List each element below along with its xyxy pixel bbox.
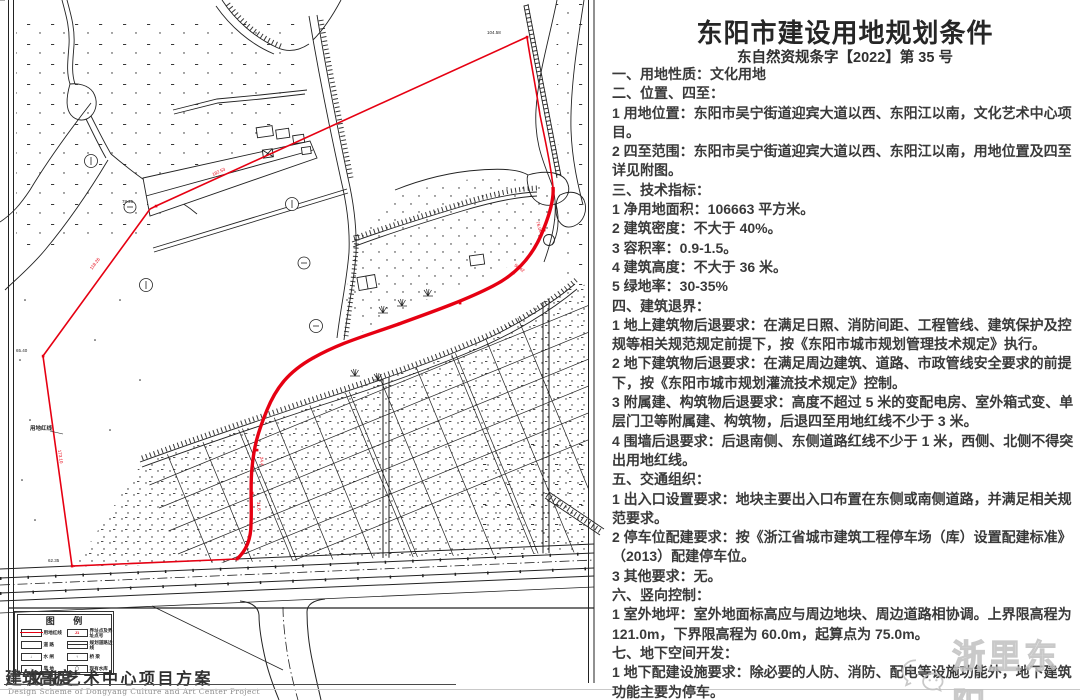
red-line-callout: 用地红线 (29, 424, 53, 432)
paragraph: 2 停车位配建要求：按《浙江省城市建筑工程停车场（库）设置配建标准》（2013）… (612, 528, 1078, 567)
legend-item-boundary-point: J1 界址点及界址点号 (67, 628, 113, 638)
legend-item-road: 道 路 (21, 641, 67, 649)
point-label: 104.58 (487, 30, 501, 35)
paragraph: 1 出入口设置要求：地块主要出入口布置在东侧或南侧道路，并满足相关规范要求。 (612, 490, 1078, 529)
legend-item-redline: 用地红线 (21, 629, 67, 637)
red-line-symbol (21, 629, 42, 637)
planned-road-symbol (67, 641, 88, 649)
paragraph: 五、交通组织： (612, 470, 1078, 489)
paragraph: 六、竖向控制： (612, 586, 1078, 605)
dim-label: 118.26 (89, 256, 101, 270)
paragraph: 一、用地性质：文化用地 (612, 65, 1078, 84)
paragraph: 3 容积率：0.9-1.5。 (612, 239, 1078, 258)
document-number: 东自然资规条字【2022】第 35 号 (610, 46, 1080, 67)
paragraph: 二、位置、四至： (612, 84, 1078, 103)
paragraph: 3 其他要求：无。 (612, 567, 1078, 586)
wechat-icon (900, 655, 946, 700)
terrain-stipple (16, 0, 588, 567)
caption-rule (4, 684, 456, 685)
legend-title: 图 例 (21, 616, 108, 627)
dim-label: 24.4 (259, 457, 265, 467)
paragraph: 2 四至范围：东阳市吴宁街道迎宾大道以西、东阳江以南，用地位置及四至详见附图。 (612, 142, 1078, 181)
paragraph: 1 地上建筑物后退要求：在满足日照、消防间距、工程管线、建筑保护及控规等相关规范… (612, 316, 1078, 355)
paragraph: 5 绿地率：30-35% (612, 277, 1078, 296)
point-label: 78.25 (122, 199, 134, 204)
road-symbol (21, 641, 42, 649)
paragraph: 2 建筑密度：不大于 40%。 (612, 219, 1078, 238)
paragraph: 1 净用地面积：106663 平方米。 (612, 200, 1078, 219)
document-title: 东阳市建设用地规划条件 (610, 13, 1080, 50)
watermark-text: 浙里东阳 (952, 630, 1080, 700)
sluice-symbol: ↓ (21, 653, 42, 661)
map-caption-overlay: 建筑高度 (5, 664, 73, 689)
legend-item-sluice: ↓ 水 闸 (21, 653, 67, 661)
site-map: 182.53 118.26 173.10 76.06 58.42 24.4 31… (0, 0, 610, 700)
paragraph: 4 建筑高度：不大于 36 米。 (612, 258, 1078, 277)
paragraph: 3 附属建、构筑物后退要求：高度不超过 5 米的变配电房、室外箱式变、单层门卫等… (612, 393, 1078, 432)
paragraph: 1 用地位置：东阳市吴宁街道迎宾大道以西、东阳江以南，文化艺术中心项目。 (612, 104, 1078, 143)
planning-conditions-sheet: 182.53 118.26 173.10 76.06 58.42 24.4 31… (0, 0, 1080, 700)
point-label: 62.35 (48, 558, 60, 563)
paragraph: 三、技术指标： (612, 181, 1078, 200)
paragraph: 2 地下建筑物后退要求：在满足周边建筑、道路、市政管线安全要求的前提下，按《东阳… (612, 354, 1078, 393)
paragraph: 4 围墙后退要求：后退南侧、东侧道路红线不少于 1 米，西侧、北侧不得突出用地红… (612, 432, 1078, 471)
bridge-symbol: ↑ (67, 653, 88, 661)
dim-label: 31.8 (256, 502, 262, 512)
boundary-point-symbol: J1 (67, 629, 88, 637)
document-body: 一、用地性质：文化用地 二、位置、四至： 1 用地位置：东阳市吴宁街道迎宾大道以… (612, 65, 1078, 700)
legend-item-bridge: ↑ 桥 梁 (67, 653, 113, 661)
paragraph: 四、建筑退界： (612, 297, 1078, 316)
legend-item-planned-road: 规划道路边线 (67, 640, 113, 650)
watermark: 浙里东阳 (900, 630, 1080, 700)
point-label: 65.40 (16, 348, 28, 353)
